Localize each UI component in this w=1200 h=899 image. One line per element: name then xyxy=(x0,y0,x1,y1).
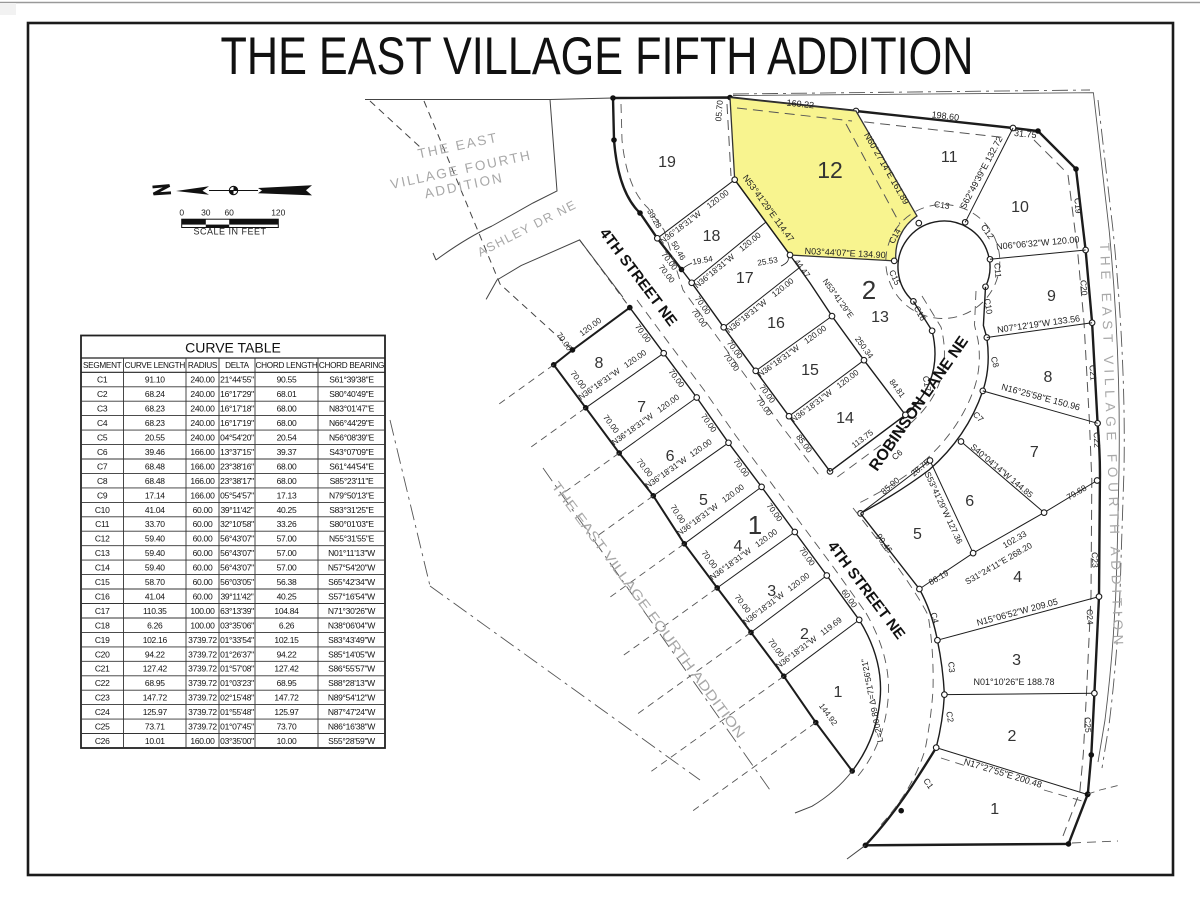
svg-text:73.70: 73.70 xyxy=(277,722,297,732)
svg-text:240.00: 240.00 xyxy=(190,418,215,428)
svg-text:5: 5 xyxy=(913,526,922,543)
svg-text:68.01: 68.01 xyxy=(277,389,297,399)
svg-text:125.97: 125.97 xyxy=(274,707,299,717)
svg-text:30: 30 xyxy=(201,208,211,218)
svg-text:N56°08'39"E: N56°08'39"E xyxy=(329,433,375,443)
svg-text:N89°54'12"W: N89°54'12"W xyxy=(328,693,376,703)
svg-text:60.00: 60.00 xyxy=(193,505,213,515)
svg-text:C7: C7 xyxy=(97,461,108,471)
svg-text:21°44'55": 21°44'55" xyxy=(220,375,254,385)
svg-text:16°17'29": 16°17'29" xyxy=(220,389,254,399)
svg-text:C23: C23 xyxy=(95,693,110,703)
svg-text:63°13'39": 63°13'39" xyxy=(220,606,254,616)
svg-text:57.00: 57.00 xyxy=(277,548,297,558)
svg-text:40.25: 40.25 xyxy=(277,505,297,515)
svg-text:10.01: 10.01 xyxy=(145,736,165,746)
svg-text:94.22: 94.22 xyxy=(145,649,165,659)
svg-text:110.35: 110.35 xyxy=(143,606,167,616)
svg-text:16°17'18": 16°17'18" xyxy=(220,404,254,414)
svg-text:C3: C3 xyxy=(946,661,957,673)
svg-text:60: 60 xyxy=(224,208,234,218)
svg-text:68.95: 68.95 xyxy=(145,678,165,688)
svg-text:S88°28'13"W: S88°28'13"W xyxy=(328,678,375,688)
svg-text:THE EAST VILLAGE FIFTH ADDITIO: THE EAST VILLAGE FIFTH ADDITION xyxy=(221,27,974,86)
svg-text:N57°54'20"W: N57°54'20"W xyxy=(328,563,376,573)
svg-text:9: 9 xyxy=(1047,288,1056,305)
svg-text:166.00: 166.00 xyxy=(190,461,215,471)
svg-text:68.00: 68.00 xyxy=(277,476,297,486)
svg-text:56°43'07": 56°43'07" xyxy=(220,534,254,544)
svg-text:N87°47'24"W: N87°47'24"W xyxy=(328,707,376,717)
svg-text:01°26'37": 01°26'37" xyxy=(220,649,254,659)
svg-text:100.00: 100.00 xyxy=(190,606,215,616)
svg-text:N79°50'13"E: N79°50'13"E xyxy=(329,490,375,500)
svg-text:60.00: 60.00 xyxy=(193,577,213,587)
svg-text:S61°44'54"E: S61°44'54"E xyxy=(329,461,374,471)
svg-text:16: 16 xyxy=(767,315,785,332)
svg-text:CURVE TABLE: CURVE TABLE xyxy=(185,340,281,356)
svg-text:68.00: 68.00 xyxy=(277,461,297,471)
svg-text:CHORD LENGTH: CHORD LENGTH xyxy=(256,361,318,370)
svg-text:3739.72: 3739.72 xyxy=(188,635,217,645)
svg-text:56.38: 56.38 xyxy=(277,577,297,587)
svg-text:19: 19 xyxy=(658,154,676,171)
svg-text:104.84: 104.84 xyxy=(274,606,299,616)
svg-text:58.70: 58.70 xyxy=(145,577,165,587)
svg-text:3739.72: 3739.72 xyxy=(188,664,217,674)
svg-text:02°15'48": 02°15'48" xyxy=(220,693,254,703)
svg-text:05°54'57": 05°54'57" xyxy=(220,490,254,500)
svg-text:15: 15 xyxy=(801,362,819,379)
svg-text:C25: C25 xyxy=(95,722,110,732)
svg-text:20.55: 20.55 xyxy=(145,433,165,443)
svg-text:2: 2 xyxy=(862,275,876,305)
svg-text:C2: C2 xyxy=(944,711,956,724)
svg-text:3739.72: 3739.72 xyxy=(188,649,217,659)
svg-text:N01°10'26"E 188.78: N01°10'26"E 188.78 xyxy=(973,677,1054,687)
svg-text:C3: C3 xyxy=(97,404,108,414)
svg-text:0: 0 xyxy=(179,208,184,218)
svg-text:03°35'06": 03°35'06" xyxy=(220,620,254,630)
svg-text:C1: C1 xyxy=(97,375,108,385)
svg-text:03°35'00": 03°35'00" xyxy=(220,736,254,746)
svg-text:17.13: 17.13 xyxy=(277,490,297,500)
svg-text:S43°07'09"E: S43°07'09"E xyxy=(329,447,374,457)
svg-text:60.00: 60.00 xyxy=(193,548,213,558)
svg-text:C20: C20 xyxy=(1078,280,1089,297)
svg-text:05.70: 05.70 xyxy=(713,99,725,121)
svg-text:C21: C21 xyxy=(95,664,110,674)
svg-text:S57°16'54"W: S57°16'54"W xyxy=(328,592,375,602)
svg-text:C11: C11 xyxy=(95,519,110,529)
svg-text:S85°23'11"E: S85°23'11"E xyxy=(330,476,374,486)
svg-text:N01°11'13"W: N01°11'13"W xyxy=(328,548,375,558)
svg-text:94.22: 94.22 xyxy=(277,649,297,659)
svg-text:CHORD BEARING: CHORD BEARING xyxy=(319,361,384,370)
svg-text:6: 6 xyxy=(965,493,974,510)
svg-text:01°55'48": 01°55'48" xyxy=(220,707,254,717)
svg-text:3739.72: 3739.72 xyxy=(188,707,217,717)
svg-text:S85°14'05"W: S85°14'05"W xyxy=(328,649,375,659)
svg-text:68.23: 68.23 xyxy=(145,404,165,414)
svg-text:18: 18 xyxy=(703,228,721,245)
svg-text:39°11'42": 39°11'42" xyxy=(220,592,253,602)
svg-text:C2: C2 xyxy=(97,389,108,399)
svg-text:40.25: 40.25 xyxy=(277,592,297,602)
svg-text:60.00: 60.00 xyxy=(193,534,213,544)
svg-text:N55°31'55"E: N55°31'55"E xyxy=(329,534,375,544)
svg-text:3739.72: 3739.72 xyxy=(188,693,217,703)
svg-text:16°17'19": 16°17'19" xyxy=(220,418,254,428)
svg-text:8: 8 xyxy=(594,355,603,372)
svg-text:C10: C10 xyxy=(95,505,110,515)
svg-text:C20: C20 xyxy=(95,649,110,659)
svg-text:C13: C13 xyxy=(95,548,110,558)
svg-text:56°43'07": 56°43'07" xyxy=(220,548,254,558)
svg-text:8: 8 xyxy=(1044,369,1053,386)
svg-text:N86°16'38"W: N86°16'38"W xyxy=(328,722,376,732)
svg-text:N83°01'47"E: N83°01'47"E xyxy=(329,404,375,414)
svg-text:160.00: 160.00 xyxy=(190,736,215,746)
svg-text:166.00: 166.00 xyxy=(190,447,215,457)
svg-text:120: 120 xyxy=(271,208,285,218)
svg-text:1: 1 xyxy=(834,684,843,701)
svg-text:17: 17 xyxy=(736,270,754,287)
svg-text:C26: C26 xyxy=(95,736,110,746)
svg-text:60.00: 60.00 xyxy=(193,592,213,602)
svg-text:C4: C4 xyxy=(97,418,108,428)
svg-text:C19: C19 xyxy=(95,635,110,645)
svg-text:3: 3 xyxy=(1012,652,1021,669)
svg-text:41.04: 41.04 xyxy=(145,592,165,602)
svg-text:60.00: 60.00 xyxy=(193,519,213,529)
svg-text:01°57'08": 01°57'08" xyxy=(220,664,254,674)
svg-text:4: 4 xyxy=(1013,569,1022,586)
svg-text:7: 7 xyxy=(637,399,646,416)
svg-text:39°11'42": 39°11'42" xyxy=(220,505,253,515)
svg-text:13°37'15": 13°37'15" xyxy=(220,447,254,457)
svg-text:C18: C18 xyxy=(95,620,110,630)
svg-text:68.95: 68.95 xyxy=(277,678,297,688)
svg-text:13: 13 xyxy=(871,309,889,326)
svg-text:68.48: 68.48 xyxy=(145,461,165,471)
svg-text:125.97: 125.97 xyxy=(143,707,168,717)
svg-text:240.00: 240.00 xyxy=(190,375,215,385)
svg-text:12: 12 xyxy=(817,157,843,183)
svg-text:10.00: 10.00 xyxy=(277,736,297,746)
svg-text:C22: C22 xyxy=(1092,432,1103,448)
svg-text:73.71: 73.71 xyxy=(145,722,165,732)
svg-text:C24: C24 xyxy=(95,707,110,717)
svg-text:C11: C11 xyxy=(992,263,1003,279)
svg-text:C12: C12 xyxy=(95,534,110,544)
svg-text:32°10'58": 32°10'58" xyxy=(220,519,254,529)
svg-text:20.54: 20.54 xyxy=(277,433,297,443)
svg-text:10: 10 xyxy=(1011,199,1029,216)
svg-text:SCALE IN FEET: SCALE IN FEET xyxy=(193,227,266,237)
svg-text:3739.72: 3739.72 xyxy=(188,722,217,732)
svg-text:C5: C5 xyxy=(97,433,108,443)
svg-text:1: 1 xyxy=(748,510,762,540)
svg-text:C14: C14 xyxy=(95,563,110,573)
svg-text:90.55: 90.55 xyxy=(277,375,297,385)
svg-text:166.00: 166.00 xyxy=(190,476,215,486)
svg-text:68.23: 68.23 xyxy=(145,418,165,428)
svg-text:C25: C25 xyxy=(1083,717,1094,733)
svg-text:100.00: 100.00 xyxy=(190,620,215,630)
svg-text:39.46: 39.46 xyxy=(145,447,165,457)
svg-text:147.72: 147.72 xyxy=(143,693,168,703)
svg-text:56°03'05": 56°03'05" xyxy=(220,577,254,587)
svg-text:7: 7 xyxy=(1030,444,1039,461)
svg-text:C23: C23 xyxy=(1090,552,1101,568)
svg-text:23°38'17": 23°38'17" xyxy=(220,476,254,486)
svg-text:04°54'20": 04°54'20" xyxy=(220,433,254,443)
svg-text:127.42: 127.42 xyxy=(143,664,168,674)
svg-text:N71°30'26"W: N71°30'26"W xyxy=(328,606,376,616)
svg-text:240.00: 240.00 xyxy=(190,389,215,399)
svg-text:240.00: 240.00 xyxy=(190,404,215,414)
svg-text:01°07'45": 01°07'45" xyxy=(220,722,254,732)
svg-text:C9: C9 xyxy=(97,490,108,500)
svg-text:DELTA: DELTA xyxy=(225,361,250,370)
svg-text:CURVE LENGTH: CURVE LENGTH xyxy=(125,361,186,370)
svg-text:C8: C8 xyxy=(97,476,108,486)
svg-text:57.00: 57.00 xyxy=(277,563,297,573)
svg-text:14: 14 xyxy=(836,410,854,427)
svg-text:33.26: 33.26 xyxy=(277,519,297,529)
svg-text:SEGMENT: SEGMENT xyxy=(83,361,122,370)
svg-text:C24: C24 xyxy=(1085,609,1096,625)
svg-text:68.48: 68.48 xyxy=(145,476,165,486)
svg-text:91.10: 91.10 xyxy=(145,375,165,385)
svg-text:102.15: 102.15 xyxy=(274,635,299,645)
svg-text:C15: C15 xyxy=(95,577,110,587)
svg-text:S86°55'57"W: S86°55'57"W xyxy=(328,664,375,674)
svg-text:59.40: 59.40 xyxy=(145,534,165,544)
svg-text:68.24: 68.24 xyxy=(145,389,165,399)
svg-text:60.00: 60.00 xyxy=(193,563,213,573)
svg-text:S61°39'38"E: S61°39'38"E xyxy=(329,375,374,385)
svg-text:127.42: 127.42 xyxy=(274,664,299,674)
svg-text:59.40: 59.40 xyxy=(145,548,165,558)
svg-text:240.00: 240.00 xyxy=(190,433,215,443)
svg-text:6.26: 6.26 xyxy=(279,620,295,630)
svg-text:C17: C17 xyxy=(95,606,110,616)
svg-text:17.14: 17.14 xyxy=(145,490,165,500)
svg-text:C6: C6 xyxy=(97,447,108,457)
svg-text:59.40: 59.40 xyxy=(145,563,165,573)
svg-text:3739.72: 3739.72 xyxy=(188,678,217,688)
svg-text:N66°44'29"E: N66°44'29"E xyxy=(329,418,375,428)
svg-text:C22: C22 xyxy=(95,678,110,688)
svg-text:C21: C21 xyxy=(1087,365,1098,382)
svg-text:41.04: 41.04 xyxy=(145,505,165,515)
svg-text:01°33'54": 01°33'54" xyxy=(220,635,254,645)
svg-text:11: 11 xyxy=(941,149,958,166)
svg-text:57.00: 57.00 xyxy=(277,534,297,544)
svg-text:68.00: 68.00 xyxy=(277,404,297,414)
svg-text:S65°42'34"W: S65°42'34"W xyxy=(328,577,375,587)
svg-text:2: 2 xyxy=(1008,728,1017,745)
svg-text:01°03'23": 01°03'23" xyxy=(220,678,254,688)
svg-text:S80°40'49"E: S80°40'49"E xyxy=(329,389,374,399)
svg-text:C16: C16 xyxy=(95,592,110,602)
svg-text:102.16: 102.16 xyxy=(143,635,168,645)
svg-text:39.37: 39.37 xyxy=(277,447,297,457)
svg-text:1: 1 xyxy=(990,801,999,818)
svg-text:166.00: 166.00 xyxy=(190,490,215,500)
svg-text:147.72: 147.72 xyxy=(274,693,299,703)
svg-text:6.26: 6.26 xyxy=(147,620,163,630)
svg-text:23°38'16": 23°38'16" xyxy=(220,461,254,471)
svg-text:S83°31'25"E: S83°31'25"E xyxy=(329,505,374,515)
svg-text:C19: C19 xyxy=(1072,198,1083,215)
svg-text:33.70: 33.70 xyxy=(145,519,165,529)
svg-text:N38°06'04"W: N38°06'04"W xyxy=(328,620,376,630)
svg-text:S80°01'03"E: S80°01'03"E xyxy=(329,519,374,529)
svg-text:RADIUS: RADIUS xyxy=(188,361,218,370)
svg-text:S83°43'49"W: S83°43'49"W xyxy=(328,635,375,645)
svg-text:S55°28'59"W: S55°28'59"W xyxy=(328,736,375,746)
svg-text:56°43'07": 56°43'07" xyxy=(220,563,254,573)
svg-text:68.00: 68.00 xyxy=(277,418,297,428)
